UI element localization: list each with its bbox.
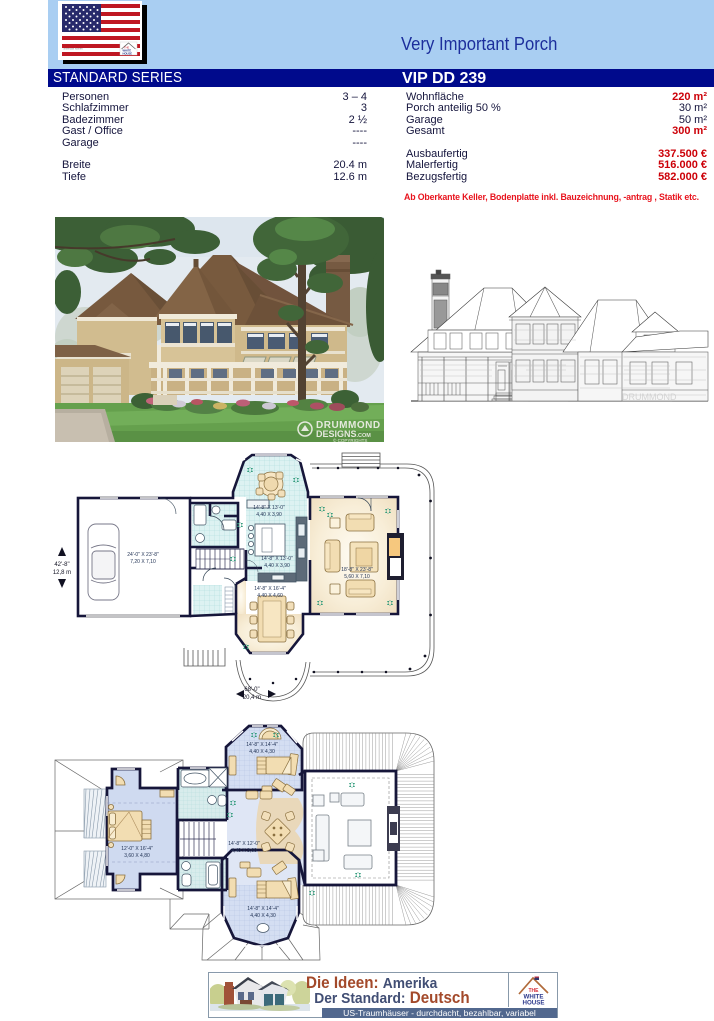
svg-text:42'-8": 42'-8": [54, 562, 69, 568]
svg-text:4,40 X 3,90: 4,40 X 3,90: [256, 512, 282, 518]
svg-text:24'-0" X 23'-8": 24'-0" X 23'-8": [127, 552, 159, 558]
svg-text:14'-8" X 14'-4": 14'-8" X 14'-4": [247, 906, 279, 912]
svg-text:14'-8" X 13'-0": 14'-8" X 13'-0": [261, 556, 293, 562]
svg-text:4,40 X 4,30: 4,40 X 4,30: [250, 913, 276, 919]
svg-text:12'-0" X 16'-4": 12'-0" X 16'-4": [121, 846, 153, 852]
svg-text:3,60 X 4,80: 3,60 X 4,80: [124, 853, 150, 859]
svg-text:4,40 X 3,90: 4,40 X 3,90: [264, 563, 290, 569]
svg-text:HOUSE: HOUSE: [522, 1000, 544, 1007]
svg-text:14'-8" X 16'-4": 14'-8" X 16'-4": [254, 586, 286, 592]
svg-text:4,40 X 3,60: 4,40 X 3,60: [231, 848, 257, 854]
svg-text:DRUMMOND: DRUMMOND: [622, 392, 677, 402]
svg-text:american homes: american homes: [64, 47, 84, 51]
svg-text:5,60 X 7,10: 5,60 X 7,10: [344, 574, 370, 580]
svg-text:14'-8" X 14'-4": 14'-8" X 14'-4": [246, 742, 278, 748]
svg-text:14'-8" X 13'-0": 14'-8" X 13'-0": [253, 505, 285, 511]
svg-text:20,4 m: 20,4 m: [243, 695, 261, 701]
svg-text:14'-8" X 12'-0": 14'-8" X 12'-0": [228, 841, 260, 847]
svg-text:12,8 m: 12,8 m: [53, 570, 71, 576]
svg-text:68'-0": 68'-0": [244, 687, 259, 693]
svg-text:7,20 X 7,10: 7,20 X 7,10: [130, 559, 156, 565]
svg-text:4,40 X 4,60: 4,40 X 4,60: [257, 593, 283, 599]
svg-text:4,40 X 4,30: 4,40 X 4,30: [249, 749, 275, 755]
svg-text:18'-8" X 23'-8": 18'-8" X 23'-8": [341, 567, 373, 573]
svg-text:© COPYRIGHTS: © COPYRIGHTS: [333, 437, 367, 442]
svg-text:HOUSE: HOUSE: [123, 52, 133, 56]
